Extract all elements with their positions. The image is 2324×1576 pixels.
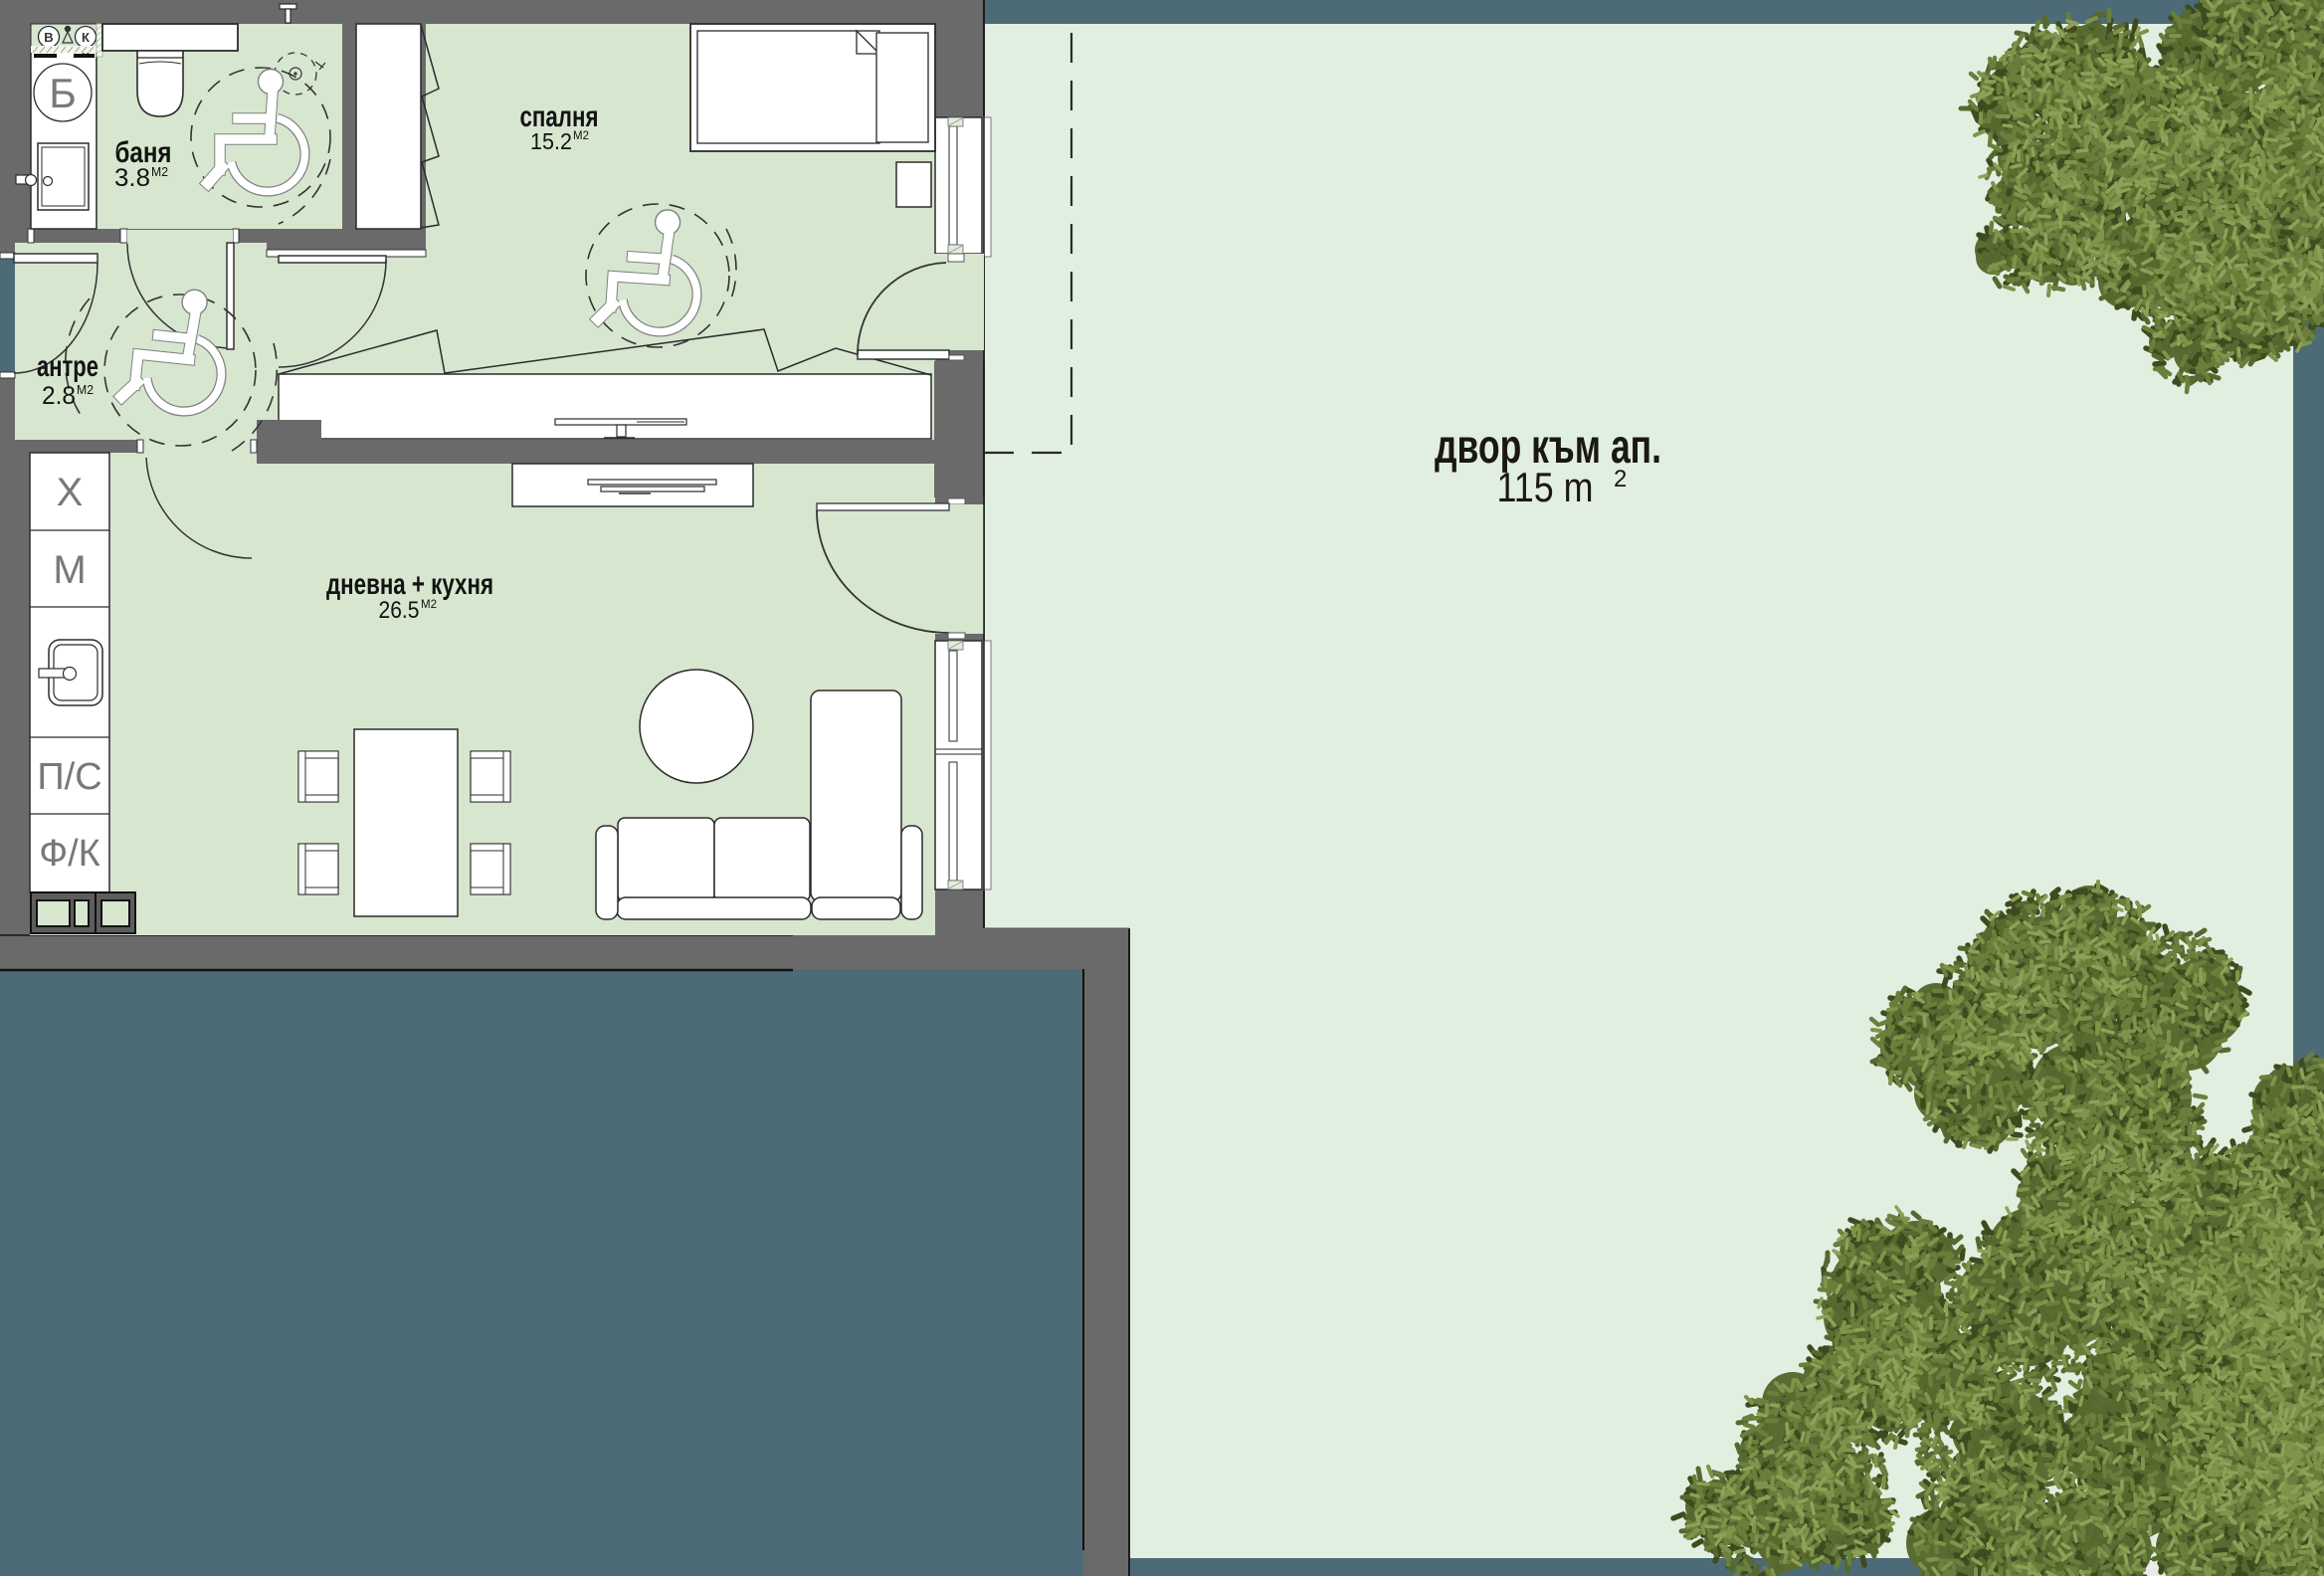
svg-text:115 m: 115 m bbox=[1497, 464, 1594, 510]
svg-text:3.8: 3.8 bbox=[114, 164, 150, 192]
svg-text:М2: М2 bbox=[421, 597, 437, 611]
svg-text:Ф/К: Ф/К bbox=[39, 833, 100, 875]
svg-text:Б: Б bbox=[49, 70, 77, 116]
svg-text:М2: М2 bbox=[573, 128, 589, 142]
svg-text:М2: М2 bbox=[151, 164, 168, 179]
svg-text:антре: антре bbox=[37, 350, 98, 383]
svg-text:П/С: П/С bbox=[37, 756, 101, 798]
svg-text:К: К bbox=[82, 30, 90, 45]
svg-text:2.8: 2.8 bbox=[42, 382, 76, 410]
svg-text:М2: М2 bbox=[77, 382, 94, 397]
svg-text:М: М bbox=[53, 548, 86, 592]
svg-text:15.2: 15.2 bbox=[530, 128, 572, 154]
svg-text:Х: Х bbox=[57, 471, 84, 514]
svg-text:2: 2 bbox=[1614, 466, 1627, 492]
svg-text:В: В bbox=[44, 30, 53, 45]
svg-text:26.5: 26.5 bbox=[379, 597, 420, 624]
